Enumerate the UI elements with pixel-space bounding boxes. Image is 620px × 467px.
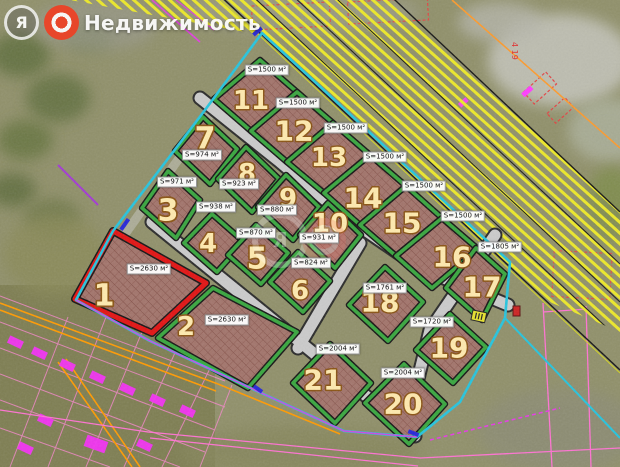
yandex-logo-red-circle-icon	[44, 5, 79, 40]
site-plan-svg: 4 19	[0, 0, 620, 467]
site-plan-image: 4 19	[0, 0, 620, 467]
yandex-realty-watermark: Я Недвижимость	[4, 5, 261, 40]
brand-name: Недвижимость	[84, 11, 261, 35]
photo-grain-overlay	[0, 0, 620, 467]
yandex-logo-letter-icon: Я	[4, 5, 39, 40]
